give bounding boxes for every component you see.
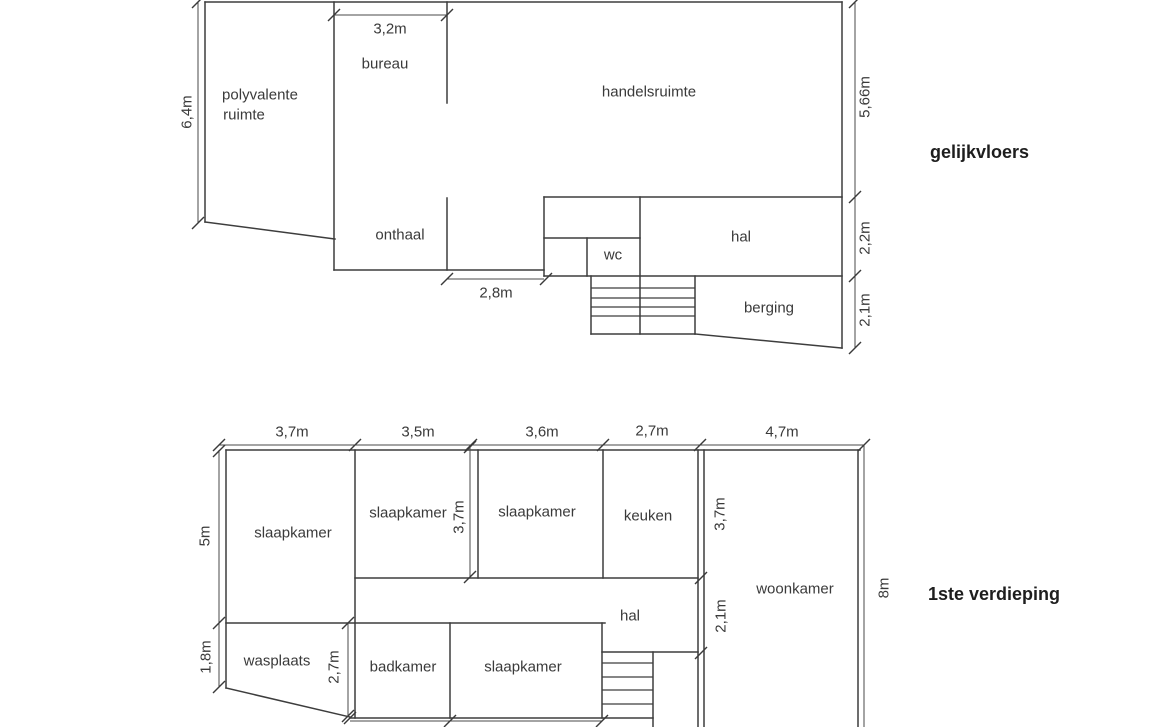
room-label: slaapkamer <box>254 525 332 542</box>
dimension-label: 2,8m <box>479 285 512 302</box>
dimension-label: 5,66m <box>857 76 874 118</box>
room-label: slaapkamer <box>484 659 562 676</box>
dimension-label: 2,7m <box>635 423 668 440</box>
dimension-label: 1,8m <box>198 640 215 673</box>
dimension-label: 2,1m <box>857 293 874 326</box>
room-label: handelsruimte <box>602 84 696 101</box>
room-label: keuken <box>624 508 672 525</box>
dimension-label: 2,7m <box>326 650 343 683</box>
wall-line <box>205 222 335 239</box>
room-label: bureau <box>362 56 409 73</box>
room-label: ruimte <box>223 107 265 124</box>
dimension-label: 6,4m <box>179 95 196 128</box>
room-label: polyvalente <box>222 87 298 104</box>
wall-line <box>695 334 842 348</box>
dimension-label: 4,7m <box>765 424 798 441</box>
wall-line <box>226 688 350 717</box>
room-label: badkamer <box>370 659 437 676</box>
dimension-label: 5m <box>197 526 214 547</box>
dimension-label: 3,2m <box>373 21 406 38</box>
floor-plan-page: gelijkvloers 1ste verdieping 6,4m3,2m2,8… <box>0 0 1152 727</box>
room-label: woonkamer <box>755 581 834 598</box>
plan-title-1ste-verdieping: 1ste verdieping <box>928 584 1060 604</box>
dimension-label: 3,6m <box>525 424 558 441</box>
dimension-tick <box>695 647 707 659</box>
dimension-label: 8m <box>876 578 893 599</box>
dimension-label: 2,1m <box>713 599 730 632</box>
plan-eerste-verdieping: 3,7m3,5m3,6m2,7m4,7m5m1,8m3,7m2,7m3,7m2,… <box>197 423 893 727</box>
plan-gelijkvloers: 6,4m3,2m2,8m5,66m2,2m2,1mpolyvalenteruim… <box>179 0 874 354</box>
plan-title-gelijkvloers: gelijkvloers <box>930 142 1029 162</box>
room-label: wc <box>603 247 623 264</box>
dimension-label: 2,2m <box>857 221 874 254</box>
dimension-label: 3,5m <box>401 424 434 441</box>
floor-plan-canvas: gelijkvloers 1ste verdieping 6,4m3,2m2,8… <box>0 0 1152 727</box>
room-label: wasplaats <box>243 653 311 670</box>
room-label: hal <box>620 608 640 625</box>
room-label: hal <box>731 229 751 246</box>
dimension-label: 3,7m <box>451 500 468 533</box>
room-label: slaapkamer <box>369 505 447 522</box>
room-label: onthaal <box>375 227 424 244</box>
dimension-label: 3,7m <box>712 497 729 530</box>
room-label: berging <box>744 300 794 317</box>
room-label: slaapkamer <box>498 504 576 521</box>
dimension-label: 3,7m <box>275 424 308 441</box>
